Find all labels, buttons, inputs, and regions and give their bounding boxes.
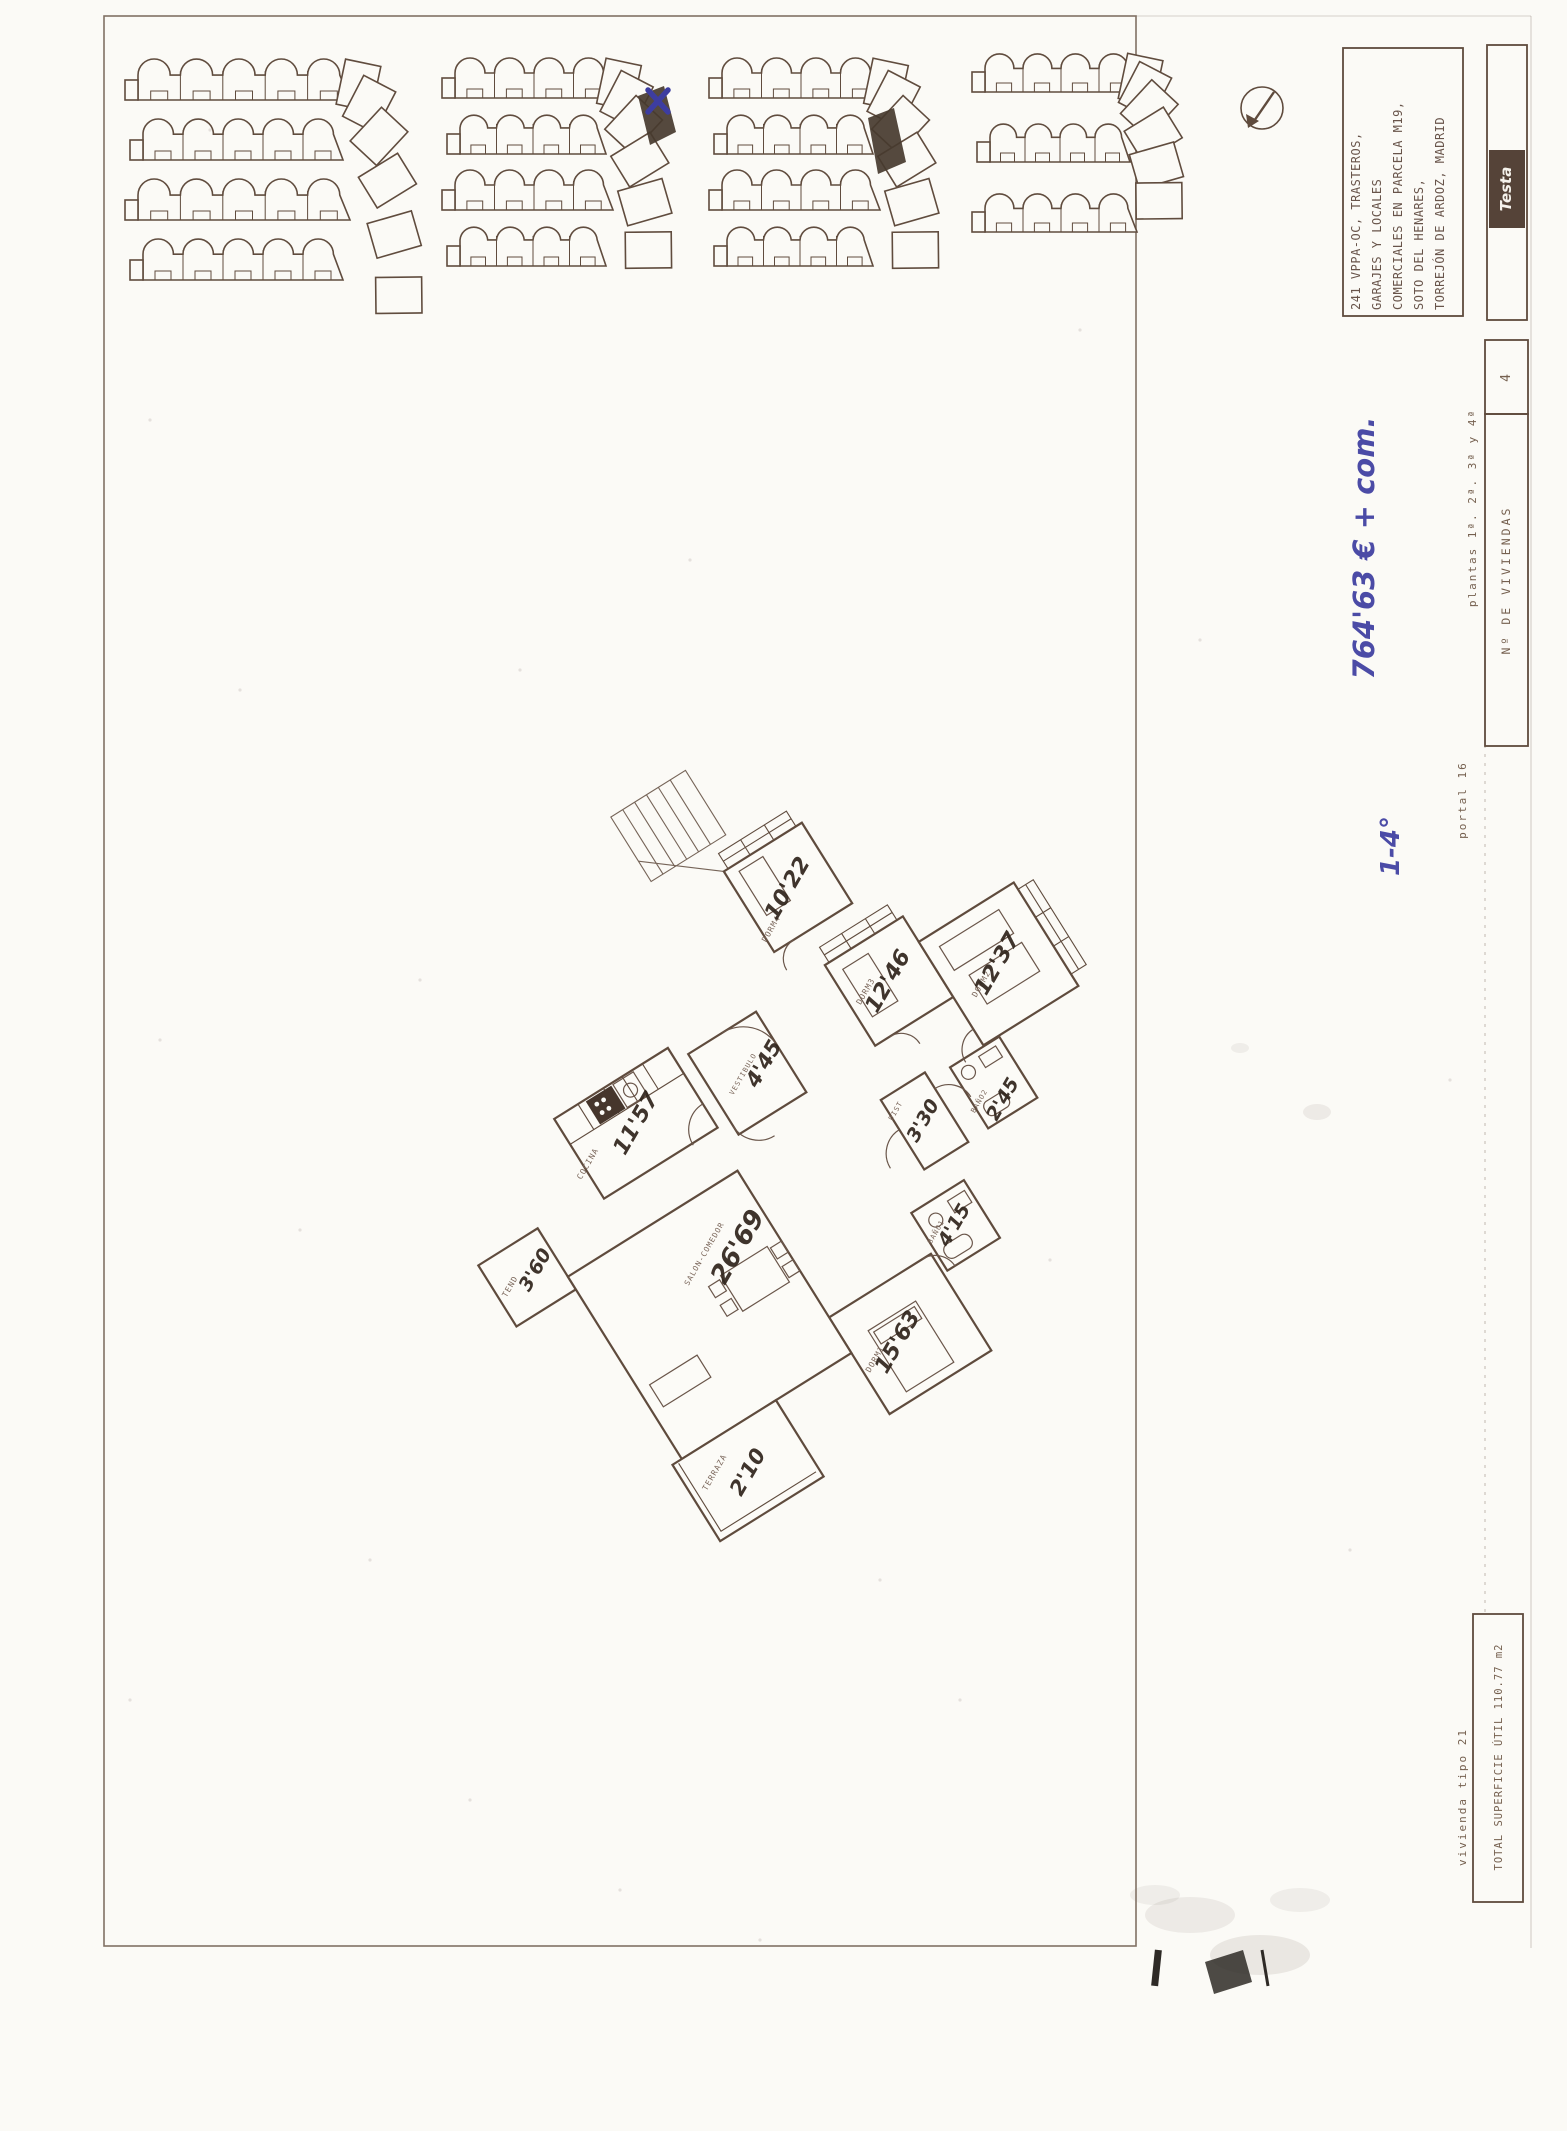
price-annotation: 764'63 € + com. (1347, 417, 1381, 680)
speck (688, 558, 691, 561)
building-arm-segment (1136, 183, 1182, 219)
building-step (125, 200, 138, 220)
num-viviendas-value: 4 (1499, 374, 1514, 382)
speck (758, 1938, 761, 1941)
plantas-label: plantas 1ª. 2ª. 3ª y 4ª (1466, 409, 1479, 607)
building-strip (138, 179, 350, 220)
building-step (972, 212, 985, 232)
building-step (972, 72, 985, 92)
speck (298, 1228, 301, 1231)
portal-label: portal 16 (1456, 761, 1469, 839)
floor-plan: TEND COCINA VESTIBULO DORM4 DORM3 DORM2 … (314, 645, 1243, 1573)
site-plan-block-1 (125, 59, 422, 313)
site-plan-block-3 (709, 58, 939, 268)
speck (1448, 1078, 1451, 1081)
num-viviendas-label: Nº DE VIVIENDAS (1499, 506, 1513, 655)
room-salon (568, 1171, 852, 1459)
speck (518, 668, 521, 671)
site-plan (125, 53, 1184, 313)
building-step (977, 142, 990, 162)
building-step (130, 140, 143, 160)
speck (468, 1798, 471, 1801)
scan-artifacts (1130, 1043, 1331, 1994)
testa-logo-text: Testa (1497, 167, 1515, 212)
project-title-line-1: 241 VPPA-OC, TRASTEROS, (1349, 132, 1363, 310)
building-step (714, 246, 727, 266)
building-arm-segment (885, 178, 939, 225)
building-strip (143, 119, 343, 160)
speck (1048, 1258, 1051, 1261)
speck (1078, 328, 1081, 331)
scan-specks (128, 128, 1451, 1941)
site-plan-block-2 (442, 58, 676, 268)
building-step (447, 134, 460, 154)
building-arm-segment (892, 232, 938, 268)
building-step (442, 190, 455, 210)
stair-core (611, 770, 742, 907)
site-plan-block-4 (972, 53, 1184, 232)
building-strip (143, 239, 343, 280)
building-step (442, 78, 455, 98)
building-step (130, 260, 143, 280)
speck (618, 1888, 621, 1891)
building-step (447, 246, 460, 266)
project-title-line-2: GARAJES Y LOCALES (1370, 179, 1384, 310)
building-arm-segment (358, 153, 416, 208)
north-arrow-icon (1241, 87, 1283, 129)
speck (1348, 1548, 1351, 1551)
vivienda-tipo-label: vivienda tipo 21 (1456, 1728, 1469, 1866)
building-step (714, 134, 727, 154)
building-arm-segment (625, 232, 671, 268)
building-arm-segment (376, 277, 422, 313)
speck (418, 978, 421, 981)
project-title-line-5: TORREJÓN DE ARDOZ, MADRID (1432, 117, 1447, 310)
speck (208, 128, 211, 131)
scanned-plan-sheet: 241 VPPA-OC, TRASTEROS, GARAJES Y LOCALE… (0, 0, 1567, 2131)
speck (1198, 638, 1201, 641)
building-arm-segment (367, 211, 421, 258)
speck (958, 1698, 961, 1701)
speck (148, 418, 151, 421)
project-title-line-4: SOTO DEL HENARES, (1412, 179, 1426, 310)
speck (238, 688, 241, 691)
building-step (125, 80, 138, 100)
speck (128, 1698, 131, 1701)
speck (368, 1558, 371, 1561)
project-title-line-3: COMERCIALES EN PARCELA M19, (1391, 101, 1405, 310)
speck (878, 1578, 881, 1581)
building-arm-segment (618, 178, 672, 225)
building-step (709, 78, 722, 98)
building-strip (138, 59, 350, 100)
floor-range-annotation: 1-4° (1376, 816, 1406, 876)
superficie-total-label: TOTAL SUPERFICIE ÚTIL 110.77 m2 (1492, 1644, 1505, 1871)
building-step (709, 190, 722, 210)
speck (158, 1038, 161, 1041)
